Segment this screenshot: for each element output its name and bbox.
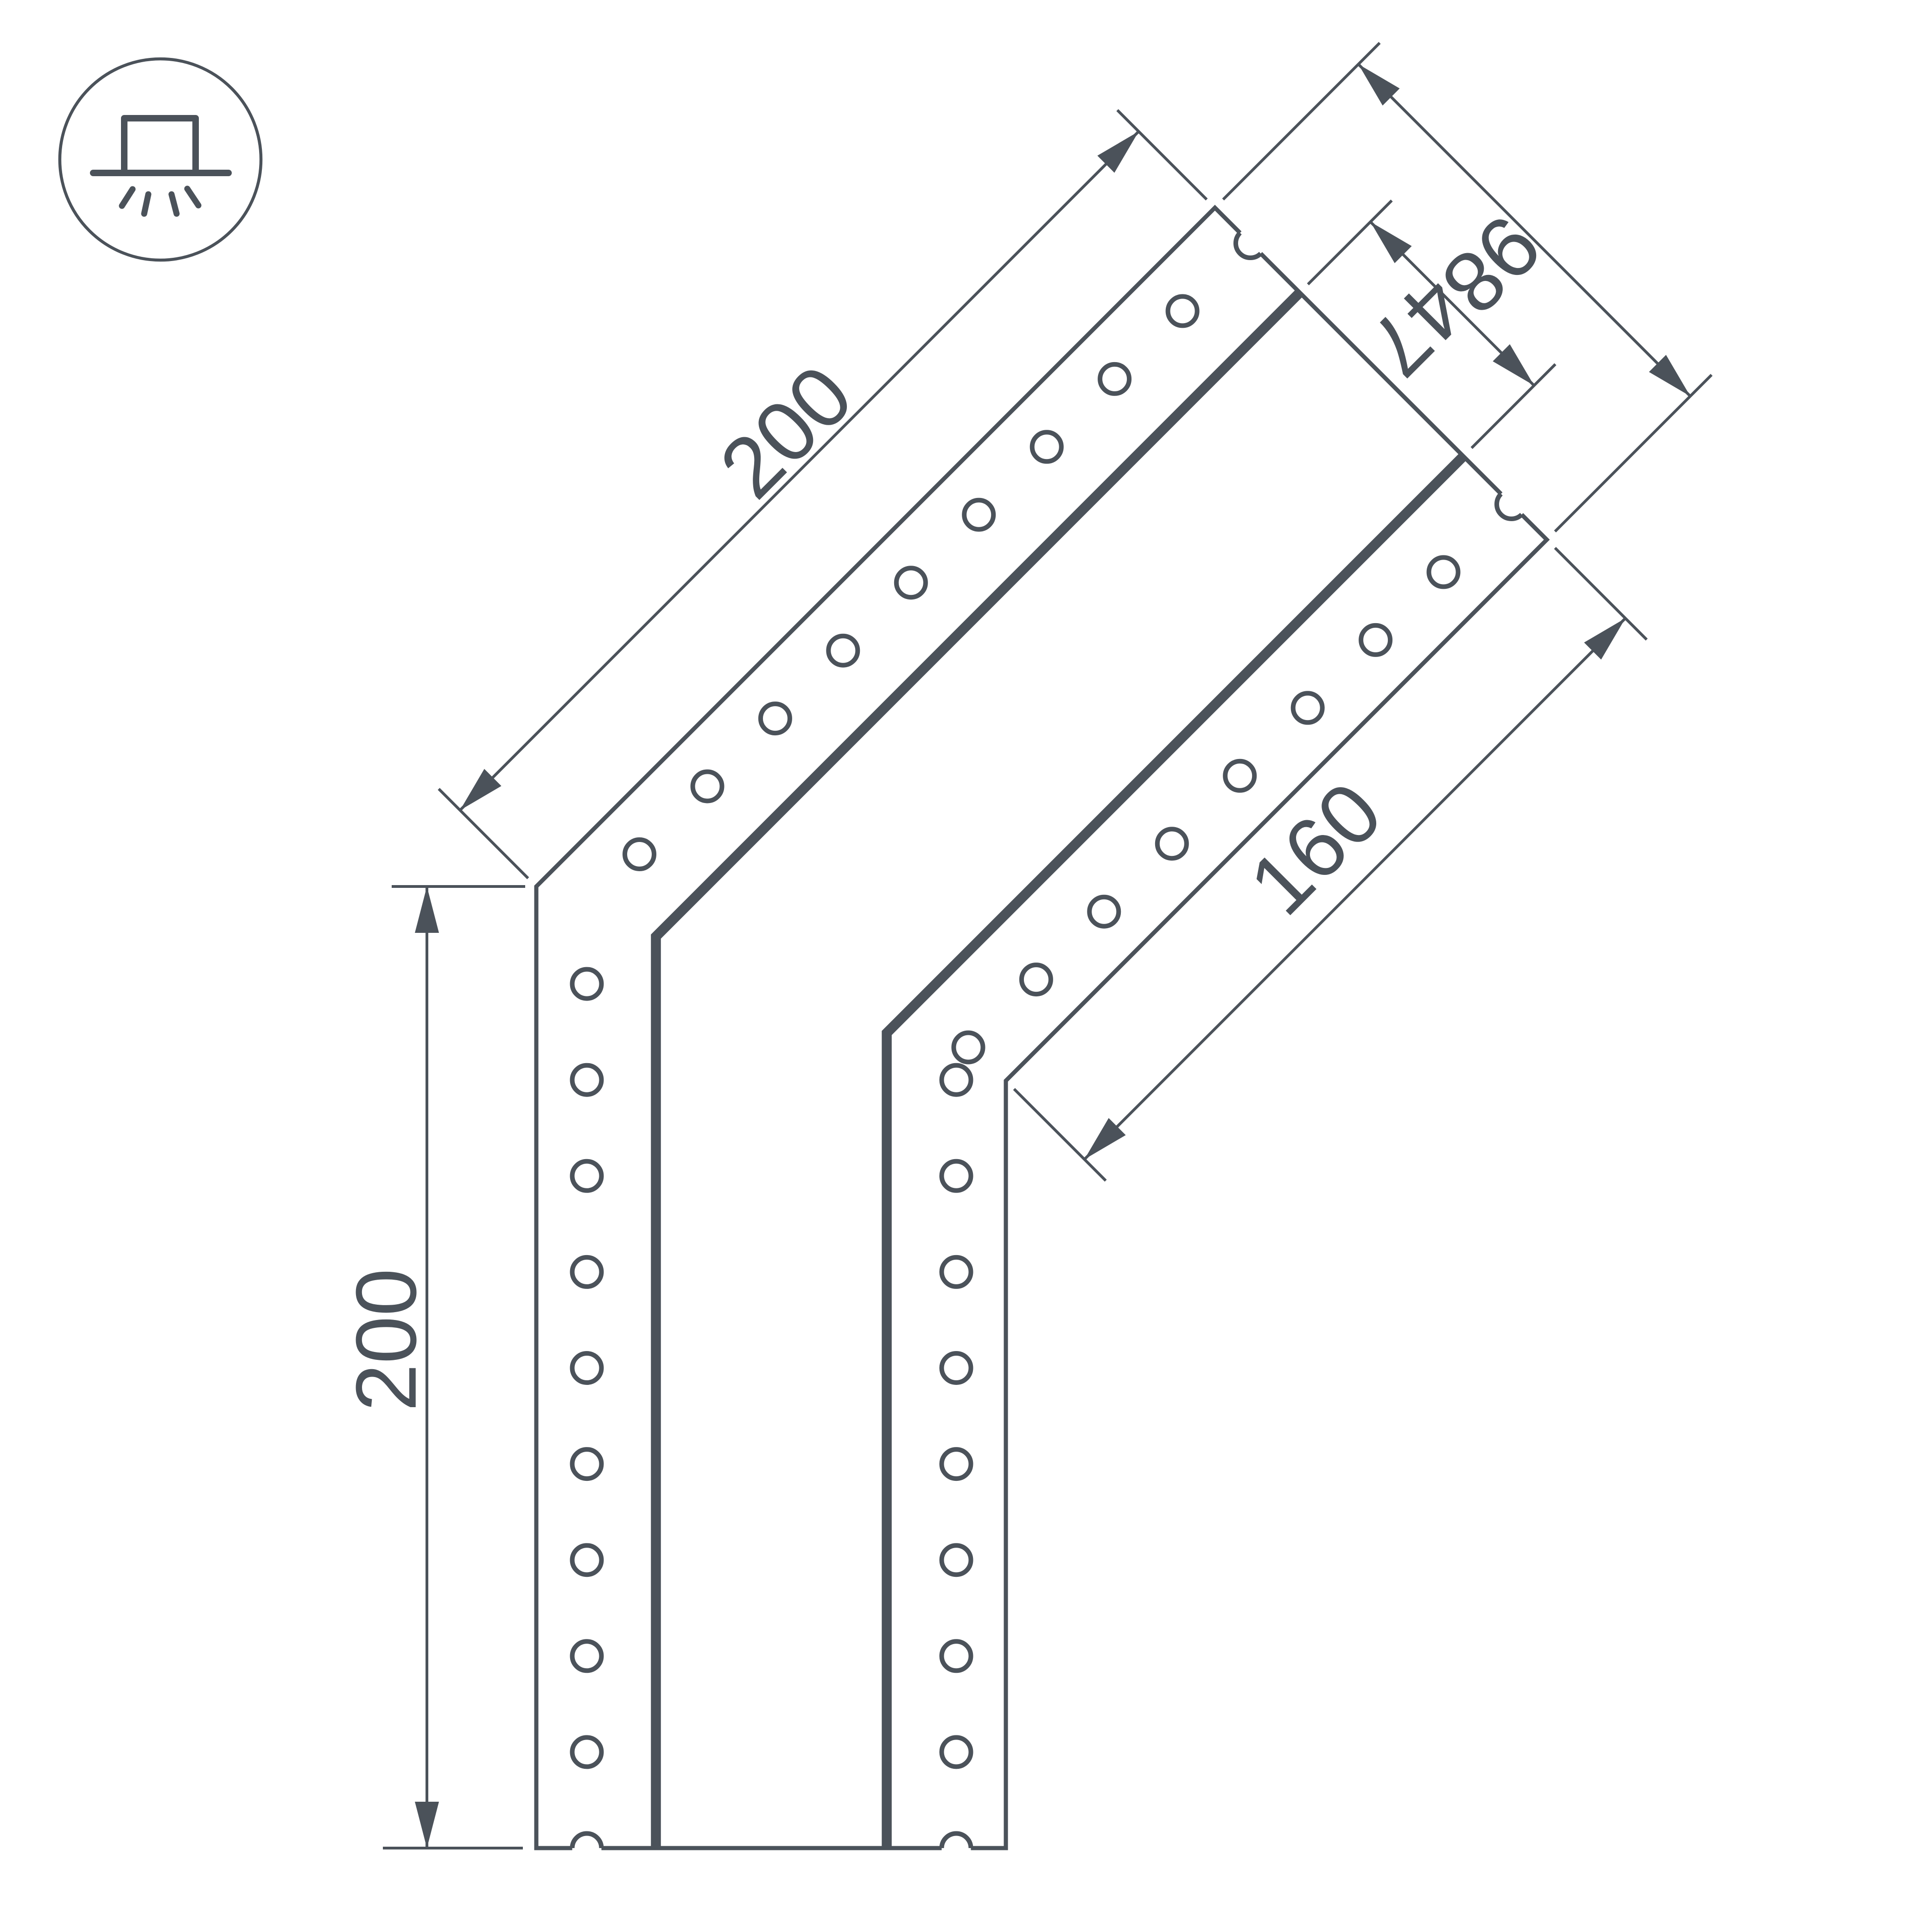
svg-text:200: 200 [339, 1269, 434, 1412]
